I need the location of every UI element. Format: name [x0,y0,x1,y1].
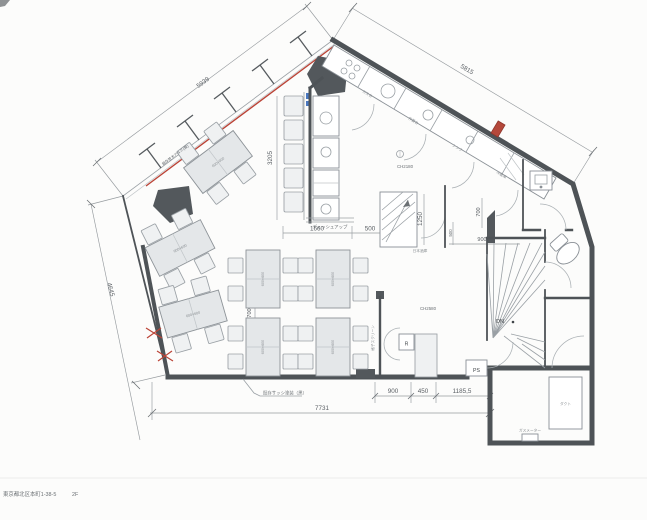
dish-up-label: ディッシュアップ [313,224,348,231]
service-counter [415,334,437,377]
dim-entry-2: 450 [418,388,429,395]
gas-meter-label: ガスメーター [519,428,541,433]
toilet-room [545,230,592,368]
dim-bottom: 7731 [315,405,330,412]
table-size-label: 600×600 [261,340,265,354]
table-size-label: 600×600 [331,340,335,354]
counter-stool [284,192,303,212]
dim-table-pitch: 700 [247,308,253,317]
dim-corridor-width: 500 [448,229,453,237]
screen-label: 格子スクリーン [370,325,375,351]
stairs-down: DN [487,238,545,368]
table-cluster-upright: 600×600 [298,318,368,376]
gas-meter-box [522,434,538,441]
utility-zone: PS ダクト ガスメーター [466,336,584,441]
table-cluster-upright: 600×600 [228,250,298,308]
sake-store-label: 日本酒庫 [413,248,428,253]
table-size-label: 600×600 [261,272,265,286]
dim-top-right: 5815 [459,63,475,76]
hall-ceiling-height: CH2580 [420,306,437,311]
counter-stool [284,144,303,164]
counter-seating [284,96,303,212]
table-cluster-upright: 600×600 [228,318,298,376]
dim-counter-length: 3205 [267,151,274,166]
dim-lavatory-width: 900 [477,237,486,243]
dim-lavatory-depth: 700 [476,207,482,216]
table-cluster-rotated: 600×600 [154,274,232,355]
sheet-floor: 2F [72,492,79,498]
scan-artifact [0,0,10,7]
kitchen-area: ガス台 作業台 シンク 冷蔵庫 ディッシュアップ CH2180 [304,45,556,238]
dim-entry-3: 1185,5 [453,388,472,395]
dim-stair-up-width: 1250 [417,212,424,227]
pipe-space-label: PS [473,368,480,374]
red-sign [491,121,505,137]
title-block: 東京都北区本町1-38-5 2F [3,490,79,498]
counter-stool [284,96,303,116]
register-label: R [405,342,409,348]
stairs-down-label: DN [496,319,504,325]
table-size-label: 600×600 [331,272,335,286]
dim-entry-1: 900 [388,388,399,395]
stair-up-room [380,192,417,247]
kitchen-equipment-band [322,45,556,199]
dim-top-left: 5939 [195,76,211,90]
counter-stool [284,168,303,188]
floor-plan-canvas: 5939 5815 4645 7731 900 450 1185,5 1660 … [0,0,647,520]
sash-note: 既存サッシ塗装（黒） [263,390,307,397]
drawing-sheet: 5939 5815 4645 7731 900 450 1185,5 1660 … [0,0,647,520]
table-cluster-upright: 600×600 [298,250,368,308]
sheet-address: 東京都北区本町1-38-5 [3,490,56,498]
counter-stool [284,120,303,140]
entry-column [356,369,375,378]
dim-left: 4645 [105,282,115,298]
kitchen-ceiling-height: CH2180 [397,164,414,169]
blue-revision-mark [306,93,309,99]
blue-revision-mark-2 [306,101,309,106]
duct-label: ダクト [560,401,571,406]
dim-service-pass: 500 [365,226,376,233]
